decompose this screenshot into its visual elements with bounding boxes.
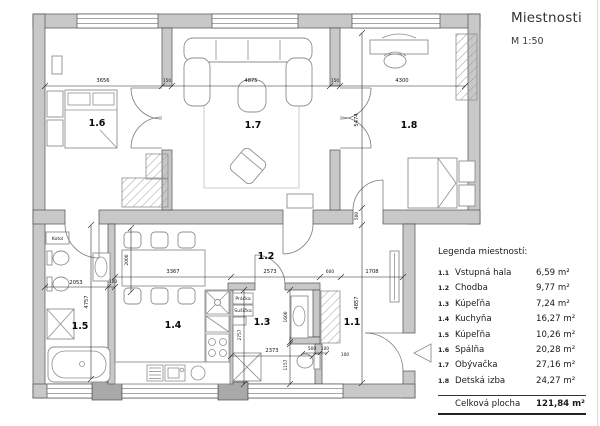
dim-label: 2373 [265, 348, 278, 354]
room-number: 1.2 [438, 285, 455, 292]
desk-chair-symbol [384, 52, 406, 68]
window [77, 14, 158, 28]
armchair-symbol [228, 146, 267, 185]
page-title: Miestnosti [511, 10, 582, 26]
door [283, 224, 313, 254]
chair-symbol [151, 288, 168, 304]
room-label-1-2: 1.2 [258, 251, 275, 262]
kitchen-furniture [115, 232, 230, 384]
room-number: 1.8 [438, 378, 455, 385]
total-label: Celková plocha [455, 399, 536, 409]
dim-label: 5474 [354, 113, 360, 127]
entrance-door [365, 333, 403, 371]
dim-label: 100 [341, 352, 349, 358]
wardrobe-symbol [321, 291, 340, 343]
windows [47, 14, 440, 398]
room-area: 10,26 m² [536, 330, 586, 340]
nightstand-symbol [47, 91, 63, 117]
shower-symbol [47, 309, 74, 339]
room-name: Kúpeľňa [455, 299, 536, 309]
room-label-1-3: 1.3 [254, 317, 271, 328]
washer-label: Práčka [235, 295, 250, 302]
room-label-1-7: 1.7 [245, 120, 262, 131]
wardrobe-symbol [122, 178, 168, 207]
dim-label: 150 [163, 78, 171, 84]
legend-heading: Legenda miestností: [438, 247, 586, 257]
room-number: 1.3 [438, 301, 455, 308]
coffee-table-symbol [238, 80, 266, 112]
room-area: 6,59 m² [536, 268, 586, 278]
dim-label: 2000 [124, 254, 130, 265]
legend-row: 1.3 Kúpeľňa 7,24 m² [438, 299, 586, 314]
dim-label: 600 [326, 269, 334, 275]
nightstand-symbol [459, 161, 475, 182]
bathtub-symbol [48, 347, 110, 382]
legend-row: 1.6 Spálňa 20,28 m² [438, 345, 586, 360]
room-name: Kúpeľňa [455, 330, 536, 340]
dim-label: 2573 [263, 269, 276, 275]
dryer-label: Sušička [234, 307, 252, 314]
legend-row: 1.5 Kúpeľňa 10,26 m² [438, 330, 586, 345]
sink-symbol [93, 253, 110, 281]
window [47, 384, 92, 398]
room-area: 20,28 m² [536, 345, 586, 355]
dim-label: 150 [331, 78, 339, 84]
double-door [131, 88, 162, 148]
door [353, 180, 383, 210]
dim-label: 2053 [69, 280, 82, 286]
legend-total-row: Celková plocha 121,84 m² [438, 395, 586, 415]
legend-row: 1.7 Obývačka 27,16 m² [438, 360, 586, 375]
room-name: Detská izba [455, 376, 536, 386]
room-number: 1.7 [438, 362, 455, 369]
dim-label: 500 [354, 212, 360, 220]
wardrobe-symbol [146, 154, 168, 179]
window [248, 384, 343, 398]
shower-symbol [233, 353, 261, 381]
kids-room-furniture [370, 34, 477, 208]
title-block: Miestnosti M 1:50 [511, 10, 582, 47]
nightstand-symbol [459, 185, 475, 206]
legend-row: 1.4 Kuchyňa 16,27 m² [438, 314, 586, 329]
dim-label: 3656 [96, 78, 109, 84]
window [122, 384, 218, 398]
nightstand-symbol [47, 120, 63, 146]
room-number: 1.5 [438, 332, 455, 339]
room-area: 9,77 m² [536, 283, 586, 293]
room-label-1-8: 1.8 [401, 120, 418, 131]
room-name: Kuchyňa [455, 314, 536, 324]
hall-furniture [321, 251, 399, 343]
room-number: 1.1 [438, 270, 455, 277]
legend: Legenda miestností: 1.1 Vstupná hala 6,5… [438, 247, 586, 415]
desk-symbol [370, 34, 428, 54]
scale-label: M 1:50 [511, 36, 582, 47]
dim-label: 4757 [84, 295, 90, 308]
room-name: Spálňa [455, 345, 536, 355]
room-area: 27,16 m² [536, 360, 586, 370]
room-number: 1.6 [438, 347, 455, 354]
room-number: 1.4 [438, 316, 455, 323]
room-area: 16,27 m² [536, 314, 586, 324]
bathroom-mid-fixtures [233, 293, 320, 381]
radiator-symbol [390, 251, 399, 302]
dim-label: 3367 [166, 269, 179, 275]
dim-label: 4857 [354, 296, 360, 309]
legend-row: 1.2 Chodba 9,77 m² [438, 283, 586, 298]
window [352, 14, 440, 28]
room-label-1-6: 1.6 [89, 118, 106, 129]
dim-label: 100 [321, 346, 329, 352]
dim-label: 4875 [244, 78, 257, 84]
dim-label: 100 [109, 279, 117, 285]
chair-symbol [178, 288, 195, 304]
chair-symbol [124, 232, 141, 248]
toilet-symbol [47, 251, 69, 265]
room-label-1-5: 1.5 [72, 321, 89, 332]
legend-row: 1.1 Vstupná hala 6,59 m² [438, 268, 586, 283]
room-name: Vstupná hala [455, 268, 536, 278]
sideboard-symbol [287, 194, 313, 208]
total-area: 121,84 m² [536, 399, 586, 409]
boiler-label: Kotol [52, 236, 63, 242]
room-label-1-1: 1.1 [344, 317, 361, 328]
dim-label: 1708 [365, 269, 378, 275]
dim-label: 1157 [283, 359, 289, 370]
pillar [92, 382, 122, 400]
radiator-symbol [52, 56, 62, 74]
bidet-symbol [47, 277, 69, 291]
dim-label: 4300 [395, 78, 408, 84]
floor-plan-page: 3656 150 4875 150 4300 5474 500 4857 205… [0, 0, 600, 426]
dim-label: 2757 [237, 329, 243, 340]
chair-symbol [151, 232, 168, 248]
room-area: 7,24 m² [536, 299, 586, 309]
entrance-arrow-icon [414, 344, 431, 362]
room-name: Obývačka [455, 360, 536, 370]
dining-table-symbol [122, 250, 205, 286]
room-name: Chodba [455, 283, 536, 293]
bathroom-left-fixtures [46, 232, 110, 382]
legend-row: 1.8 Detská izba 24,27 m² [438, 376, 586, 391]
dim-label: 500 [308, 346, 316, 352]
window [212, 14, 298, 28]
sink-symbol [291, 296, 308, 338]
bed-symbol [408, 158, 457, 208]
room-label-1-4: 1.4 [165, 320, 182, 331]
chair-symbol [178, 232, 195, 248]
dim-label: 1600 [283, 311, 289, 322]
dimension-lines: 3656 150 4875 150 4300 5474 500 4857 205… [42, 30, 468, 387]
wardrobe-symbol [456, 34, 477, 100]
room-area: 24,27 m² [536, 376, 586, 386]
window-edge-line [597, 0, 598, 426]
